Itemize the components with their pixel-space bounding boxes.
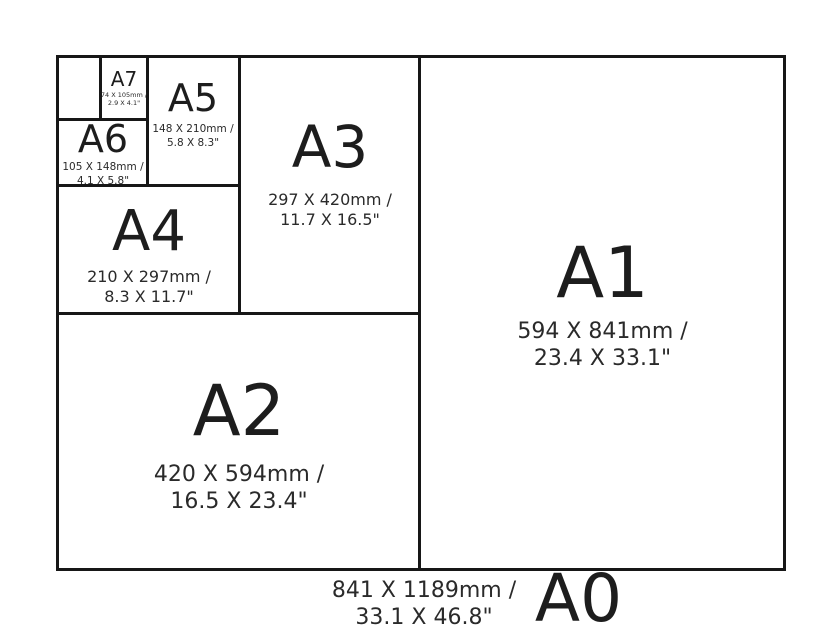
a3-region-label: A3 297 X 420mm / 11.7 X 16.5" [240, 118, 420, 230]
a3-dims: 297 X 420mm / 11.7 X 16.5" [240, 190, 420, 230]
a4-dims-inches: 8.3 X 11.7" [58, 287, 240, 307]
a6-size-label: A6 [58, 120, 148, 158]
a6-dims: 105 X 148mm / 4.1 X 5.8" [58, 160, 148, 188]
a3-dims-mm: 297 X 420mm / [240, 190, 420, 210]
a3-size-label: A3 [240, 118, 420, 176]
a1-region-label: A1 594 X 841mm / 23.4 X 33.1" [420, 238, 785, 373]
a7-size-label: A7 [100, 69, 148, 89]
a7-dims: 74 X 105mm / 2.9 X 4.1" [100, 91, 148, 108]
a0-dims: 841 X 1189mm / 33.1 X 46.8" [295, 578, 553, 629]
a7-dims-mm: 74 X 105mm / [100, 91, 148, 99]
paper-size-diagram: A7 74 X 105mm / 2.9 X 4.1" A6 105 X 148m… [0, 0, 840, 629]
a6-region-label: A6 105 X 148mm / 4.1 X 5.8" [58, 120, 148, 188]
a6-dims-mm: 105 X 148mm / [58, 160, 148, 174]
a0-size-label: A0 [516, 566, 641, 629]
a2-dims-inches: 16.5 X 23.4" [58, 489, 420, 516]
a3-dims-inches: 11.7 X 16.5" [240, 210, 420, 230]
a7-region-label: A7 74 X 105mm / 2.9 X 4.1" [100, 69, 148, 108]
a2-dims: 420 X 594mm / 16.5 X 23.4" [58, 462, 420, 516]
a4-size-label: A4 [58, 204, 240, 260]
a5-dims: 148 X 210mm / 5.8 X 8.3" [147, 122, 239, 150]
a4-region-label: A4 210 X 297mm / 8.3 X 11.7" [58, 204, 240, 307]
a6-dims-inches: 4.1 X 5.8" [58, 174, 148, 188]
a4-dims-mm: 210 X 297mm / [58, 267, 240, 287]
a1-dims-mm: 594 X 841mm / [420, 319, 785, 346]
a0-region-label: A0 [516, 566, 641, 629]
a7-dims-inches: 2.9 X 4.1" [100, 99, 148, 107]
a1-dims: 594 X 841mm / 23.4 X 33.1" [420, 319, 785, 373]
a2-size-label: A2 [58, 376, 420, 446]
a1-size-label: A1 [420, 238, 785, 308]
a4-dims: 210 X 297mm / 8.3 X 11.7" [58, 267, 240, 307]
a5-dims-inches: 5.8 X 8.3" [147, 136, 239, 150]
a5-dims-mm: 148 X 210mm / [147, 122, 239, 136]
a1-dims-inches: 23.4 X 33.1" [420, 346, 785, 373]
a2-region-label: A2 420 X 594mm / 16.5 X 23.4" [58, 376, 420, 516]
a0-dims-block: 841 X 1189mm / 33.1 X 46.8" [295, 578, 553, 629]
a5-region-label: A5 148 X 210mm / 5.8 X 8.3" [147, 79, 239, 150]
a5-size-label: A5 [147, 79, 239, 117]
a0-dims-inches: 33.1 X 46.8" [295, 605, 553, 629]
a2-dims-mm: 420 X 594mm / [58, 462, 420, 489]
a0-dims-mm: 841 X 1189mm / [295, 578, 553, 605]
